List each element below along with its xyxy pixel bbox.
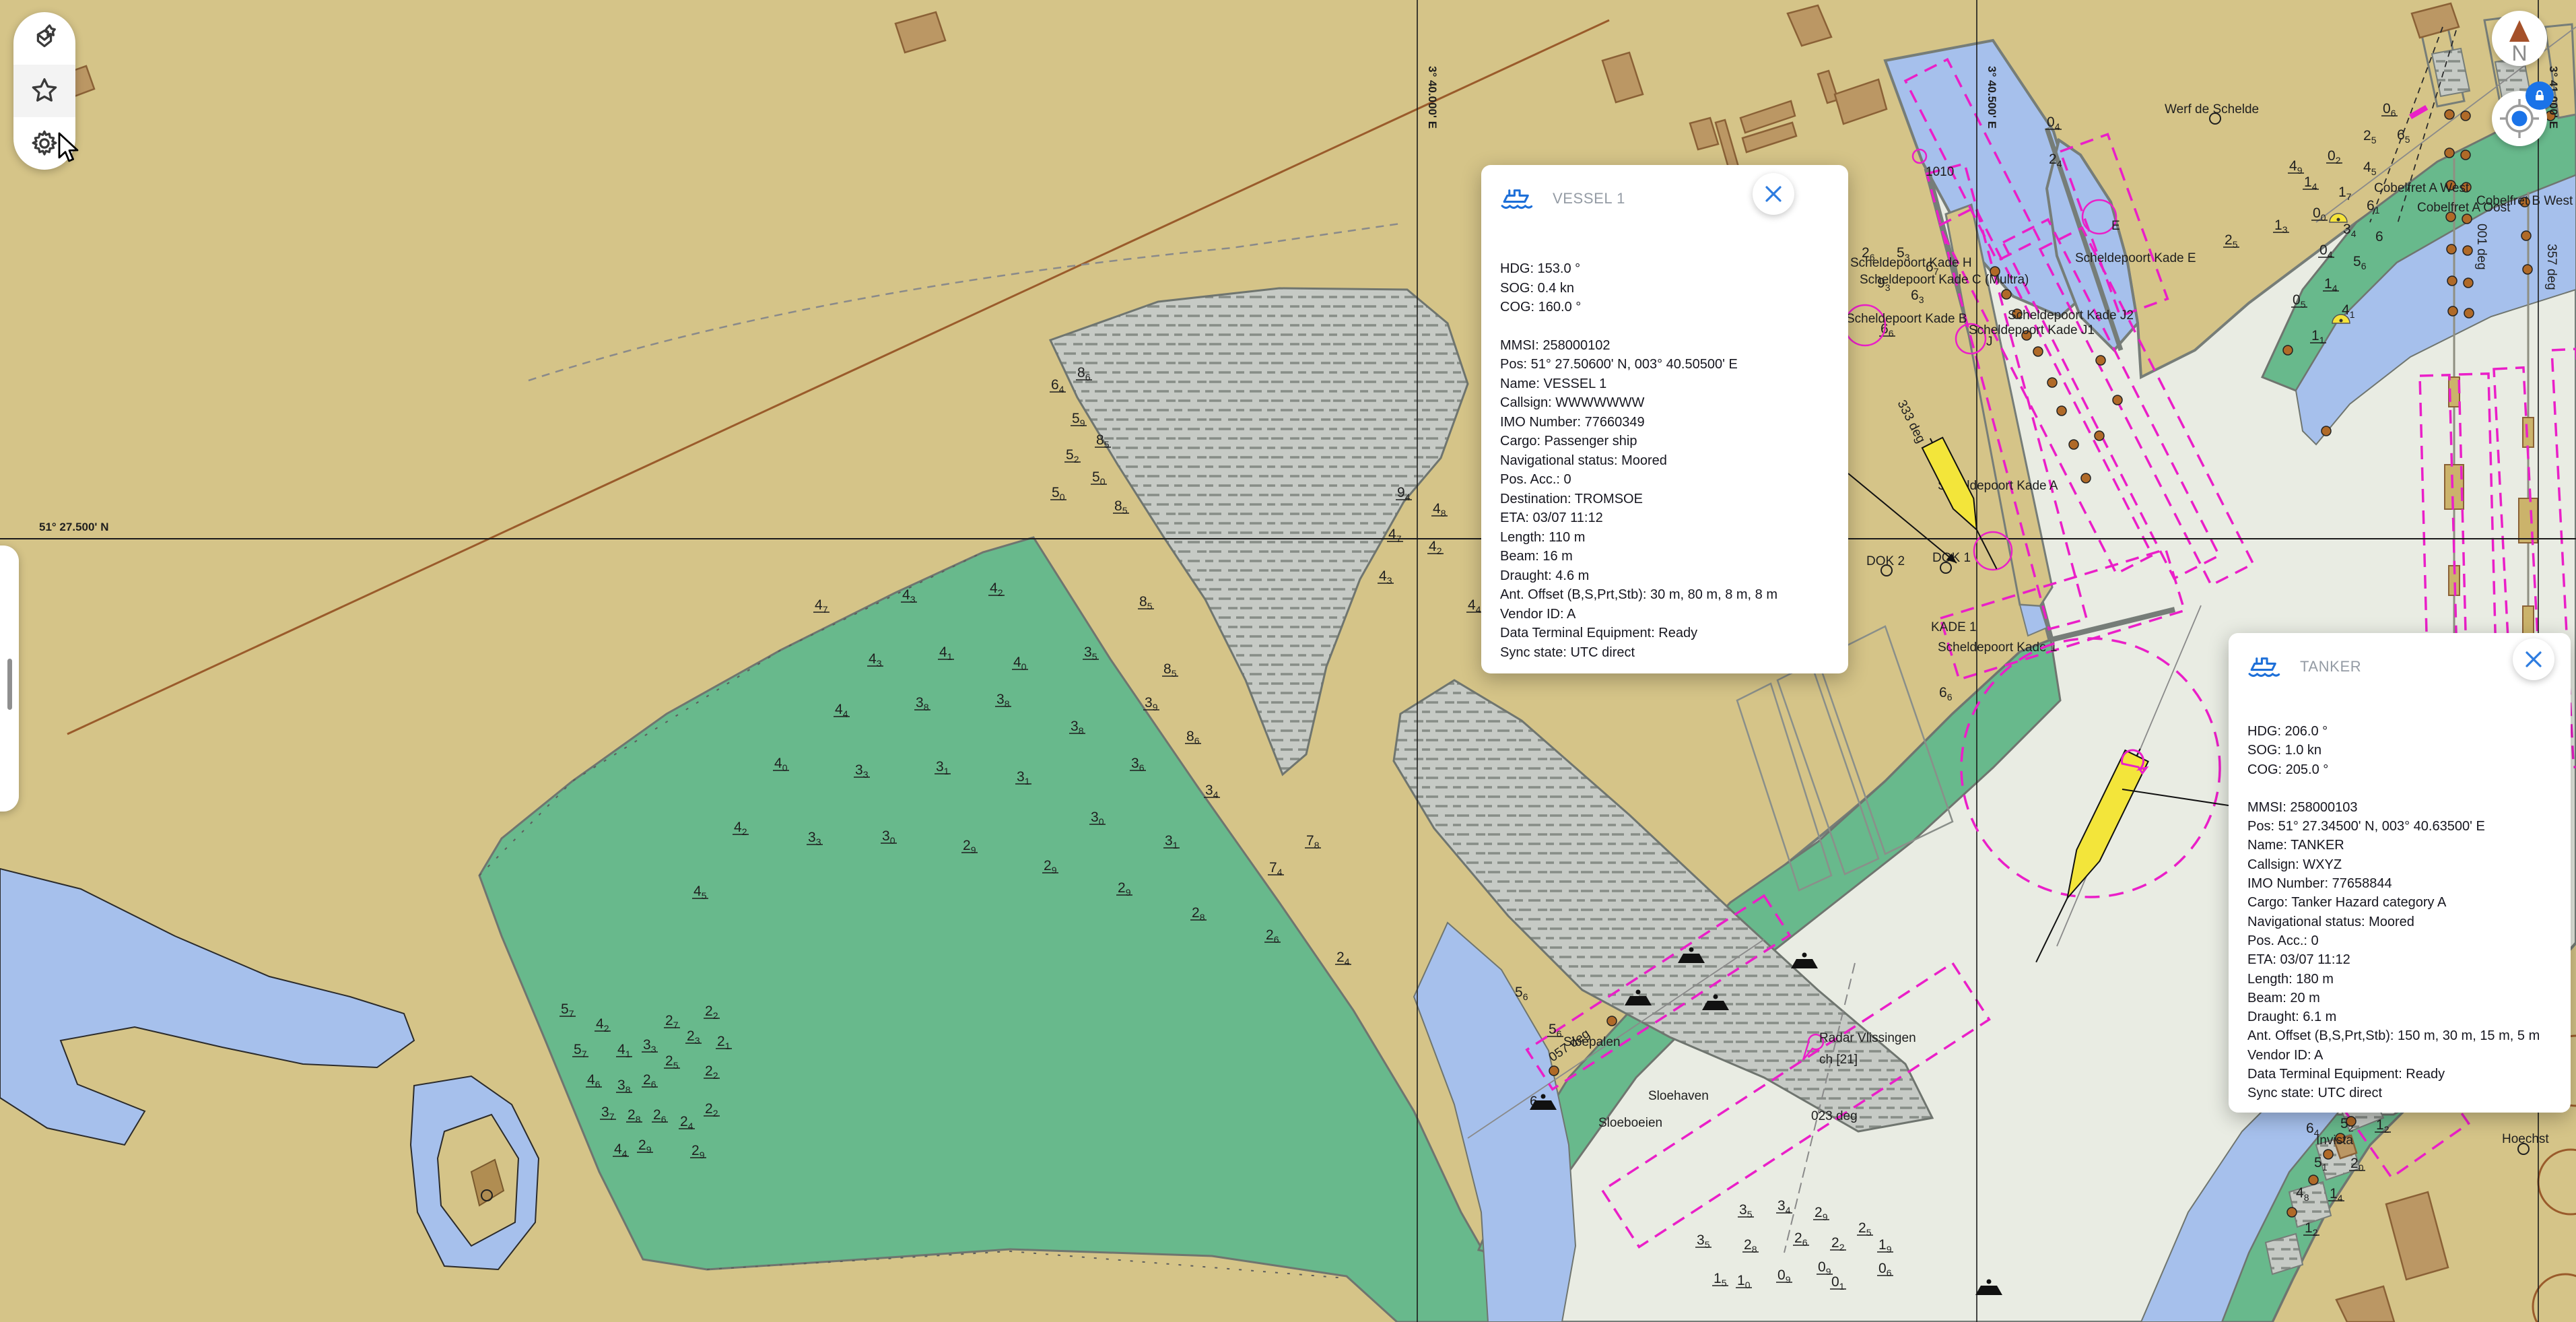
detail-line: Length: 110 m bbox=[1500, 528, 1837, 548]
detail-line: Pos. Acc.: 0 bbox=[2247, 931, 2560, 950]
dolphin-symbol bbox=[2521, 231, 2531, 240]
detail-line: Navigational status: Moored bbox=[1500, 451, 1837, 471]
detail-line: Data Terminal Equipment: Ready bbox=[1500, 624, 1837, 643]
dolphin-symbol bbox=[2463, 246, 2472, 255]
detail-line: Beam: 20 m bbox=[2247, 989, 2560, 1007]
detail-line: Pos: 51° 27.34500' N, 003° 40.63500' E bbox=[2247, 817, 2560, 836]
sounding: 6 bbox=[2375, 229, 2383, 244]
dolphin-symbol bbox=[2523, 265, 2532, 274]
dolphin-symbol bbox=[2464, 308, 2474, 318]
dolphin-symbol bbox=[2309, 1175, 2318, 1185]
detail-line: IMO Number: 77660349 bbox=[1500, 413, 1837, 432]
dolphin-symbol bbox=[2069, 440, 2078, 449]
dolphin-symbol bbox=[2095, 431, 2104, 440]
ship-icon bbox=[2247, 653, 2282, 680]
close-button[interactable] bbox=[1753, 173, 1794, 215]
map-label: 357 deg bbox=[2544, 244, 2558, 290]
detail-line bbox=[1500, 317, 1837, 336]
detail-line: MMSI: 258000103 bbox=[2247, 798, 2560, 817]
favorites-button[interactable] bbox=[13, 65, 75, 117]
detail-line: Data Terminal Equipment: Ready bbox=[2247, 1065, 2560, 1084]
side-drawer[interactable] bbox=[0, 546, 19, 812]
vessel-details: HDG: 153.0 °SOG: 0.4 knCOG: 160.0 °MMSI:… bbox=[1500, 259, 1837, 662]
gps-lock-badge bbox=[2526, 81, 2554, 110]
map-label: Scheldepoort Kade E bbox=[2075, 251, 2196, 265]
map-label: Radar Vlissingen bbox=[1819, 1031, 1916, 1045]
nautical-chart[interactable]: 4743424341403539443838383634403331313031… bbox=[0, 0, 2576, 1322]
dolphin-symbol bbox=[2448, 306, 2458, 316]
map-label: Cobelfret B West bbox=[2476, 194, 2573, 208]
dolphin-symbol bbox=[2047, 378, 2057, 387]
map-label: Sloehaven bbox=[1648, 1089, 1709, 1103]
dolphin-symbol bbox=[2461, 111, 2470, 121]
map-label: Scheldepoort Kade J2 bbox=[2008, 308, 2134, 323]
popup-header: TANKER bbox=[2247, 653, 2361, 680]
detail-line: Ant. Offset (B,S,Prt,Stb): 150 m, 30 m, … bbox=[2247, 1026, 2560, 1045]
detail-line: COG: 160.0 ° bbox=[1500, 298, 1837, 317]
map-label: Cobelfret A West bbox=[2374, 181, 2470, 195]
detail-line: HDG: 206.0 ° bbox=[2247, 722, 2560, 741]
north-arrow-icon bbox=[2509, 20, 2530, 42]
detail-line: MMSI: 258000102 bbox=[1500, 336, 1837, 356]
close-button[interactable] bbox=[2513, 638, 2554, 680]
detail-line: SOG: 1.0 kn bbox=[2247, 741, 2560, 760]
dolphin-symbol bbox=[2033, 347, 2043, 356]
longitude-label: 3° 40.500' E bbox=[1986, 66, 1998, 129]
detail-line bbox=[2247, 779, 2560, 798]
dolphin-symbol bbox=[2287, 1208, 2297, 1217]
lock-icon bbox=[2533, 89, 2546, 102]
dolphin-symbol bbox=[2445, 148, 2454, 158]
detail-line: Pos. Acc.: 0 bbox=[1500, 470, 1837, 490]
drawer-handle-icon bbox=[7, 659, 12, 710]
vessel-details: HDG: 206.0 °SOG: 1.0 knCOG: 205.0 °MMSI:… bbox=[2247, 722, 2560, 1103]
dolphin-symbol bbox=[2461, 150, 2470, 160]
map-application: 4743424341403539443838383634403331313031… bbox=[0, 0, 2576, 1322]
dolphin-symbol bbox=[2346, 1117, 2356, 1126]
dolphin-symbol bbox=[2096, 356, 2105, 365]
detail-line: Destination: TROMSOE bbox=[1500, 490, 1837, 509]
close-icon bbox=[1765, 185, 1782, 203]
detail-line: Navigational status: Moored bbox=[2247, 913, 2560, 931]
detail-line: Sync state: UTC direct bbox=[1500, 643, 1837, 663]
detail-line: Sync state: UTC direct bbox=[2247, 1084, 2560, 1102]
dolphin-symbol bbox=[2283, 345, 2293, 355]
detail-line: Name: VESSEL 1 bbox=[1500, 374, 1837, 394]
map-label: E bbox=[2111, 219, 2120, 233]
detail-line: Callsign: WWWWWWW bbox=[1500, 393, 1837, 413]
gps-locate-button[interactable] bbox=[2492, 91, 2547, 146]
dolphin-symbol bbox=[2447, 244, 2456, 254]
map-label: 001 deg bbox=[2474, 224, 2488, 270]
detail-line: Cargo: Tanker Hazard category A bbox=[2247, 893, 2560, 912]
favorites-star-icon bbox=[29, 75, 60, 106]
settings-button[interactable] bbox=[13, 117, 75, 170]
detail-line: Vendor ID: A bbox=[2247, 1046, 2560, 1065]
longitude-label: 3° 40.000' E bbox=[1426, 66, 1439, 129]
map-label: Invista bbox=[2316, 1133, 2353, 1148]
map-label: ch [21] bbox=[1819, 1053, 1858, 1067]
charts-button[interactable] bbox=[13, 12, 75, 65]
dolphin-symbol bbox=[2321, 426, 2331, 436]
map-label: 023 deg bbox=[1811, 1109, 1858, 1123]
svg-text:6: 6 bbox=[2375, 229, 2383, 244]
detail-line: HDG: 153.0 ° bbox=[1500, 259, 1837, 279]
compass-button[interactable]: N bbox=[2492, 11, 2547, 66]
map-label: Werf de Schelde bbox=[2165, 102, 2259, 117]
map-label: J bbox=[1986, 335, 1993, 349]
close-icon bbox=[2525, 651, 2542, 668]
map-label: DOK 2 bbox=[1866, 554, 1905, 568]
map-label: Scheldepoort Kade B bbox=[1846, 312, 1967, 326]
detail-line: Pos: 51° 27.50600' N, 003° 40.50500' E bbox=[1500, 355, 1837, 374]
detail-line: Callsign: WXYZ bbox=[2247, 855, 2560, 874]
detail-line: ETA: 03/07 11:12 bbox=[2247, 950, 2560, 969]
detail-line: Vendor ID: A bbox=[1500, 605, 1837, 624]
vessel-info-popup: TANKER HDG: 206.0 °SOG: 1.0 knCOG: 205.0… bbox=[2229, 633, 2571, 1113]
map-label: Scheldepoort Kade C (Multra) bbox=[1860, 273, 2029, 287]
detail-line: Draught: 6.1 m bbox=[2247, 1007, 2560, 1026]
dolphin-symbol bbox=[2462, 214, 2472, 224]
map-label: KADE 1 bbox=[1931, 620, 1977, 634]
vessel-info-popup: VESSEL 1 HDG: 153.0 °SOG: 0.4 knCOG: 160… bbox=[1481, 165, 1848, 673]
compass-n-label: N bbox=[2511, 41, 2527, 65]
detail-line: SOG: 0.4 kn bbox=[1500, 279, 1837, 298]
popup-header: VESSEL 1 bbox=[1500, 185, 1625, 212]
detail-line: COG: 205.0 ° bbox=[2247, 760, 2560, 779]
dolphin-symbol bbox=[2445, 110, 2454, 119]
detail-line: Beam: 16 m bbox=[1500, 547, 1837, 566]
dolphin-symbol bbox=[2447, 276, 2457, 286]
dolphin-symbol bbox=[1607, 1016, 1617, 1026]
map-label: Scheldepoort Kade H bbox=[1850, 256, 1972, 270]
detail-line: Cargo: Passenger ship bbox=[1500, 432, 1837, 451]
map-label: Hoechst bbox=[2502, 1132, 2549, 1146]
detail-line: Draught: 4.6 m bbox=[1500, 566, 1837, 586]
ship-icon bbox=[1500, 185, 1535, 212]
dolphin-symbol bbox=[2057, 406, 2066, 416]
detail-line: IMO Number: 77658844 bbox=[2247, 874, 2560, 893]
settings-gear-icon bbox=[29, 128, 60, 159]
dolphin-symbol bbox=[2324, 1150, 2333, 1159]
map-label: Sloeboeien bbox=[1598, 1116, 1662, 1130]
popup-title: TANKER bbox=[2300, 658, 2361, 675]
dolphin-symbol bbox=[1549, 1066, 1559, 1076]
latitude-label: 51° 27.500' N bbox=[39, 521, 108, 533]
map-label: 1010 bbox=[1926, 165, 1954, 179]
dolphin-symbol bbox=[2113, 395, 2122, 405]
charts-icon bbox=[29, 23, 60, 54]
map-toolbar bbox=[13, 12, 75, 170]
dolphin-symbol bbox=[2002, 290, 2011, 299]
map-label: Scheldepoort Kade 1 bbox=[1938, 640, 2057, 655]
dolphin-symbol bbox=[2464, 278, 2473, 288]
popup-title: VESSEL 1 bbox=[1553, 190, 1625, 207]
detail-line: Name: TANKER bbox=[2247, 836, 2560, 855]
detail-line: Length: 180 m bbox=[2247, 970, 2560, 989]
detail-line: ETA: 03/07 11:12 bbox=[1500, 508, 1837, 528]
detail-line: Ant. Offset (B,S,Prt,Stb): 30 m, 80 m, 8… bbox=[1500, 585, 1837, 605]
dolphin-symbol bbox=[2081, 473, 2091, 483]
